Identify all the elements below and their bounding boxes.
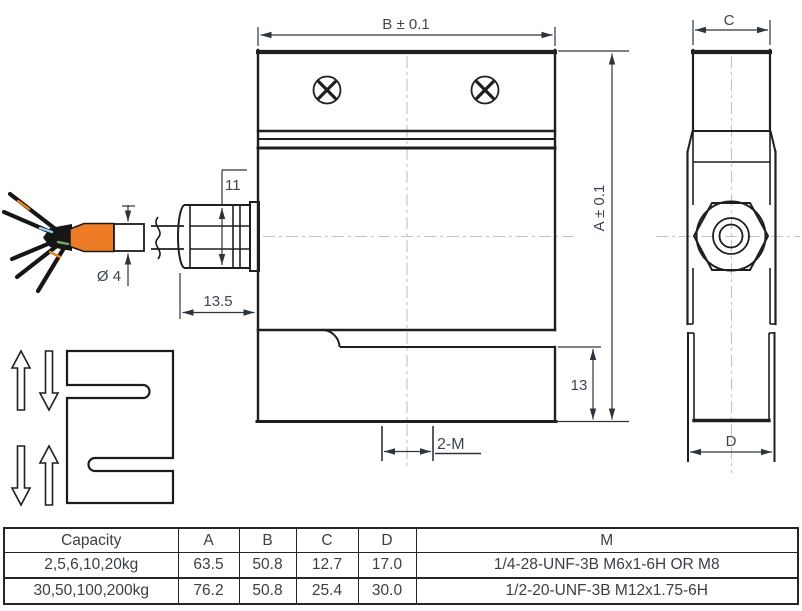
arrow-down-icon xyxy=(40,351,58,410)
cell-m: 1/4-28-UNF-3B M6x1-6H OR M8 xyxy=(416,553,798,579)
screw-icon xyxy=(314,77,341,104)
cell-a: 76.2 xyxy=(178,578,239,604)
table-header-row: Capacity A B C D M xyxy=(4,528,798,553)
dimension-d: D xyxy=(690,433,772,452)
dim-c-label: C xyxy=(724,12,735,29)
cable-diameter-label: Ø 4 xyxy=(97,268,121,285)
break-symbol xyxy=(156,217,160,259)
dimension-2m: 2-M xyxy=(382,426,481,461)
dimension-b: B ± 0.1 xyxy=(258,16,555,46)
arrow-up-icon xyxy=(40,446,58,505)
cell-b: 50.8 xyxy=(239,553,296,579)
cell-m: 1/2-20-UNF-3B M12x1.75-6H xyxy=(416,578,798,604)
arrow-up-icon xyxy=(12,351,30,410)
cell-a: 63.5 xyxy=(178,553,239,579)
dim-13-label: 13 xyxy=(571,377,588,394)
cell-c: 25.4 xyxy=(296,578,358,604)
cell-capacity: 30,50,100,200kg xyxy=(4,578,178,604)
dim-a-label: A ± 0.1 xyxy=(591,185,608,232)
cable-gland xyxy=(178,202,259,271)
header-d: D xyxy=(358,528,416,553)
header-a: A xyxy=(178,528,239,553)
cell-capacity: 2,5,6,10,20kg xyxy=(4,553,178,579)
s-type-symbol xyxy=(12,351,173,505)
cable-jacket xyxy=(114,224,144,251)
table-row: 30,50,100,200kg 76.2 50.8 25.4 30.0 1/2-… xyxy=(4,578,798,604)
thread-label: 2-M xyxy=(437,436,465,453)
cell-d: 17.0 xyxy=(358,553,416,579)
dimension-13: 13 xyxy=(558,347,601,420)
dimensions-table: Capacity A B C D M 2,5,6,10,20kg 63.5 50… xyxy=(3,527,799,605)
dimension-13-5: 13.5 xyxy=(180,273,255,319)
cell-c: 12.7 xyxy=(296,553,358,579)
header-c: C xyxy=(296,528,358,553)
centerlines xyxy=(263,56,800,473)
cable-sleeve xyxy=(70,224,114,252)
header-capacity: Capacity xyxy=(4,528,178,553)
dim-d-label: D xyxy=(726,433,737,450)
cell-b: 50.8 xyxy=(239,578,296,604)
dim-13-5-label: 13.5 xyxy=(203,293,232,310)
arrow-down-icon xyxy=(12,446,30,505)
load-cell-drawing: B ± 0.1 A ± 0.1 13 2-M xyxy=(0,0,802,527)
cable-assembly xyxy=(4,194,184,291)
wire-bundle xyxy=(43,224,72,251)
table-row: 2,5,6,10,20kg 63.5 50.8 12.7 17.0 1/4-28… xyxy=(4,553,798,579)
dim-b-label: B ± 0.1 xyxy=(382,16,429,33)
cell-d: 30.0 xyxy=(358,578,416,604)
s-beam-outline xyxy=(67,351,173,503)
screw-icon xyxy=(472,77,499,104)
dimension-c: C xyxy=(693,12,770,45)
dim-11-label: 11 xyxy=(225,177,241,194)
technical-drawing-page: B ± 0.1 A ± 0.1 13 2-M xyxy=(0,0,802,611)
header-m: M xyxy=(416,528,798,553)
header-b: B xyxy=(239,528,296,553)
front-view: B ± 0.1 A ± 0.1 13 2-M xyxy=(97,16,629,461)
dimension-11: 11 xyxy=(222,170,247,265)
